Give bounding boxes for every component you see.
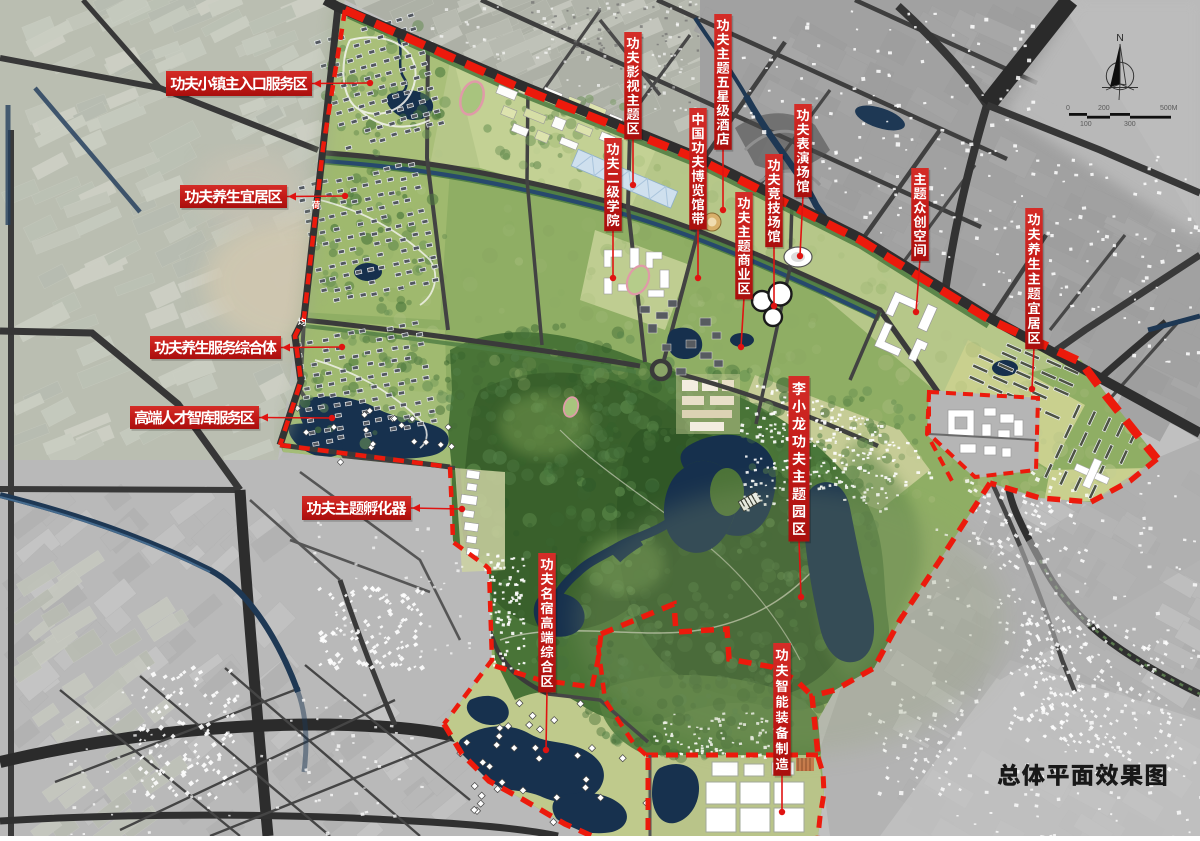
- svg-text:200: 200: [1098, 105, 1110, 112]
- svg-text:100: 100: [1080, 121, 1092, 128]
- svg-text:0: 0: [1066, 105, 1070, 112]
- svg-text:N: N: [1116, 32, 1124, 44]
- svg-text:500M: 500M: [1160, 105, 1178, 112]
- svg-text:300: 300: [1124, 121, 1136, 128]
